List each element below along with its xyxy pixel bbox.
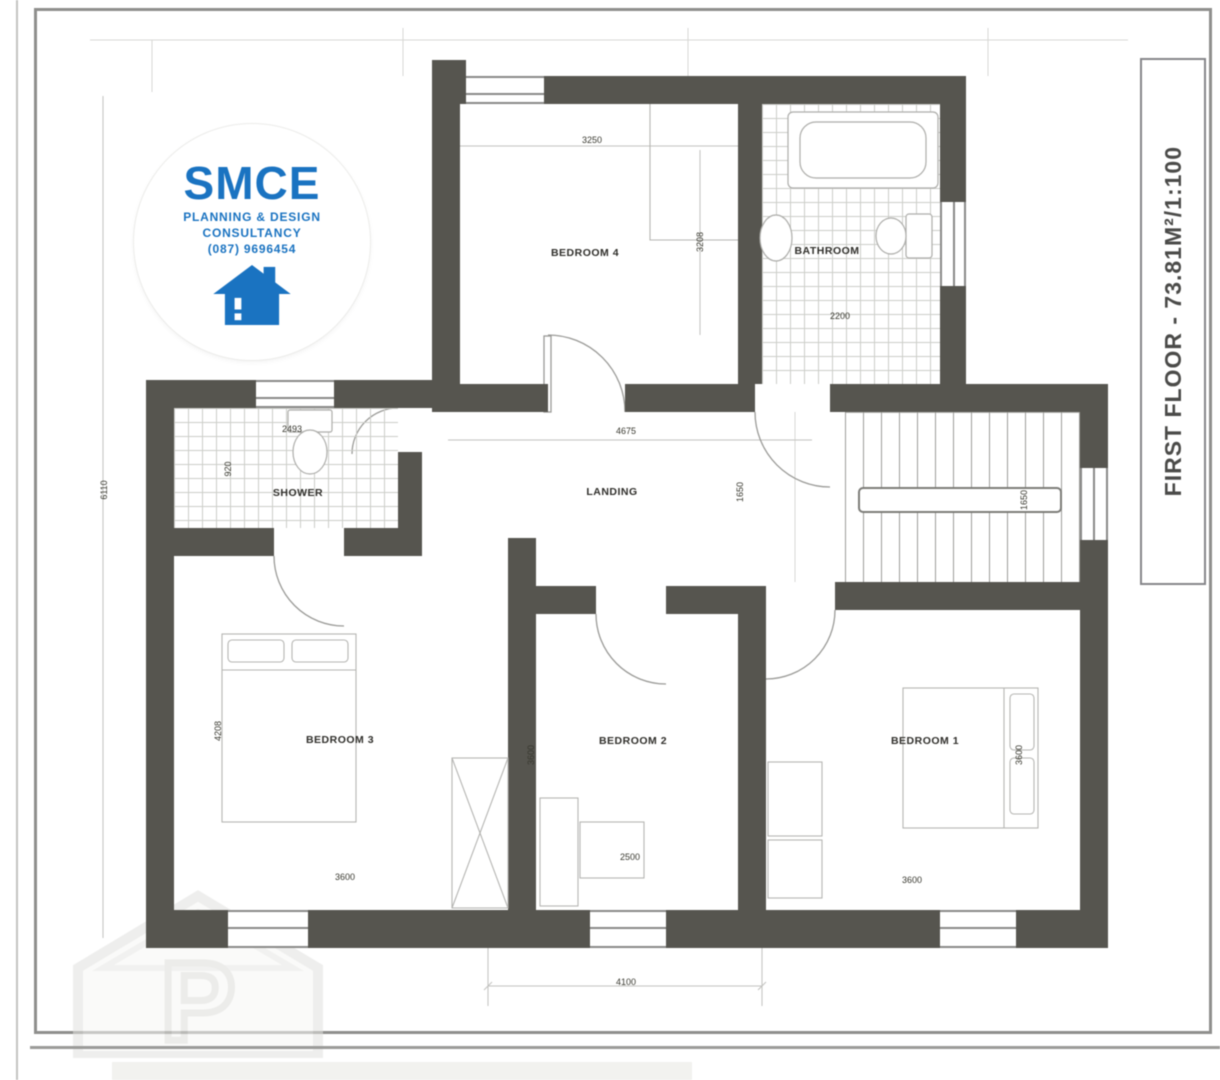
next-sheet-content [112, 1062, 692, 1080]
dim-bedroom2-width: 2500 [620, 852, 640, 862]
next-sheet-border [30, 1046, 1220, 1049]
room-label-landing: LANDING [586, 486, 637, 498]
dim-bedroom2-depth: 3600 [526, 745, 536, 765]
bedroom3-wardrobe [452, 758, 508, 908]
room-label-bedroom2: BEDROOM 2 [599, 735, 667, 747]
room-label-bedroom3: BEDROOM 3 [306, 734, 374, 746]
logo-tagline-2: CONSULTANCY [202, 226, 301, 241]
room-label-bedroom4: BEDROOM 4 [551, 247, 619, 259]
drawing-sheet: P [0, 0, 1220, 1080]
dim-shower-depth: 920 [223, 461, 233, 476]
dim-bathroom-width: 2200 [830, 311, 850, 321]
dim-bedroom3-width: 3600 [335, 872, 355, 882]
dim-bedroom4-depth: 3208 [695, 232, 705, 252]
dim-bedroom1-depth: 3600 [1014, 745, 1024, 765]
room-label-bathroom: BATHROOM [794, 245, 859, 257]
dim-landing-width: 4675 [616, 426, 636, 436]
title-block: FIRST FLOOR - 73.81M²/1:100 [1140, 58, 1206, 585]
bedroom4-wardrobe [650, 104, 738, 240]
room-label-bedroom1: BEDROOM 1 [891, 735, 959, 747]
bedroom3-bed [222, 634, 356, 822]
bathroom-toilet [876, 214, 932, 258]
dim-overall-width: 4100 [616, 977, 636, 987]
dim-stairs-width: 1650 [735, 482, 745, 502]
logo-phone: (087) 9696454 [208, 242, 296, 257]
dim-bedroom4-width: 3250 [582, 135, 602, 145]
dim-overall-height: 6110 [99, 480, 109, 499]
room-label-shower: SHOWER [273, 487, 323, 499]
dim-bedroom3-depth: 4208 [213, 721, 223, 741]
drawing-title: FIRST FLOOR - 73.81M²/1:100 [1160, 146, 1187, 496]
company-logo: SMCE PLANNING & DESIGN CONSULTANCY (087)… [134, 124, 370, 360]
house-icon [213, 265, 291, 325]
dim-shower-width: 2493 [282, 424, 302, 434]
bathroom-sink [760, 215, 792, 261]
bedroom1-dressers [768, 762, 822, 898]
logo-tagline-1: PLANNING & DESIGN [183, 210, 321, 225]
bathtub [788, 112, 938, 188]
company-name: SMCE [184, 160, 321, 206]
shower-toilet [288, 410, 332, 474]
dim-stairs-width-2: 1650 [1019, 490, 1029, 510]
dim-bedroom1-width: 3600 [902, 875, 922, 885]
